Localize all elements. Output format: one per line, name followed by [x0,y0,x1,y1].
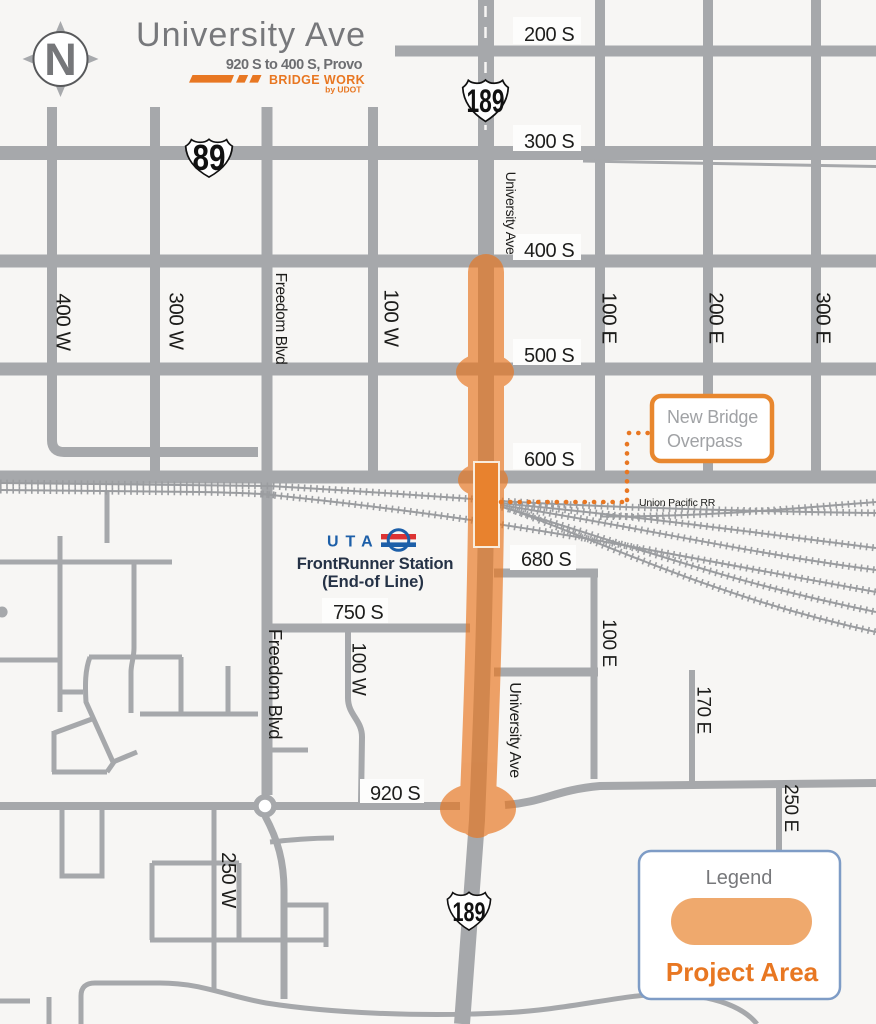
svg-text:N: N [44,34,77,85]
svg-text:250 E: 250 E [780,784,801,832]
svg-text:by UDOT: by UDOT [325,85,362,95]
svg-text:920 S: 920 S [370,783,420,805]
svg-text:600 S: 600 S [524,449,574,471]
svg-text:University Ave: University Ave [503,172,519,255]
svg-text:189: 189 [467,83,505,119]
svg-text:100 E: 100 E [598,292,621,344]
svg-text:300 E: 300 E [812,292,835,344]
svg-text:750 S: 750 S [333,602,383,624]
svg-text:89: 89 [193,137,226,178]
svg-text:Freedom Blvd: Freedom Blvd [272,273,289,365]
svg-text:170 E: 170 E [693,686,714,734]
svg-text:UTA: UTA [327,534,380,551]
svg-text:Legend: Legend [706,867,773,889]
svg-text:250 W: 250 W [217,852,239,908]
svg-text:University Ave: University Ave [506,682,523,778]
svg-text:200 S: 200 S [524,24,574,46]
svg-text:400 W: 400 W [52,293,75,351]
svg-text:500 S: 500 S [524,345,574,367]
svg-text:100 E: 100 E [598,619,619,667]
svg-text:300 S: 300 S [524,131,574,153]
svg-text:100 W: 100 W [348,643,369,696]
svg-text:New Bridge: New Bridge [667,407,758,427]
svg-text:189: 189 [453,897,486,927]
svg-text:Union Pacific RR: Union Pacific RR [639,497,716,509]
svg-text:Freedom Blvd: Freedom Blvd [265,629,286,739]
svg-text:400 S: 400 S [524,240,574,262]
svg-text:FrontRunner Station: FrontRunner Station [297,555,454,573]
svg-text:100 W: 100 W [380,289,403,347]
svg-text:University Ave: University Ave [136,16,366,54]
svg-text:920 S to 400 S, Provo: 920 S to 400 S, Provo [226,57,363,73]
svg-text:Overpass: Overpass [667,431,743,451]
svg-text:Project Area: Project Area [666,957,819,987]
svg-text:300 W: 300 W [165,292,188,350]
svg-text:200 E: 200 E [705,292,728,344]
svg-text:680 S: 680 S [521,549,571,571]
svg-text:(End-of Line): (End-of Line) [322,573,424,591]
